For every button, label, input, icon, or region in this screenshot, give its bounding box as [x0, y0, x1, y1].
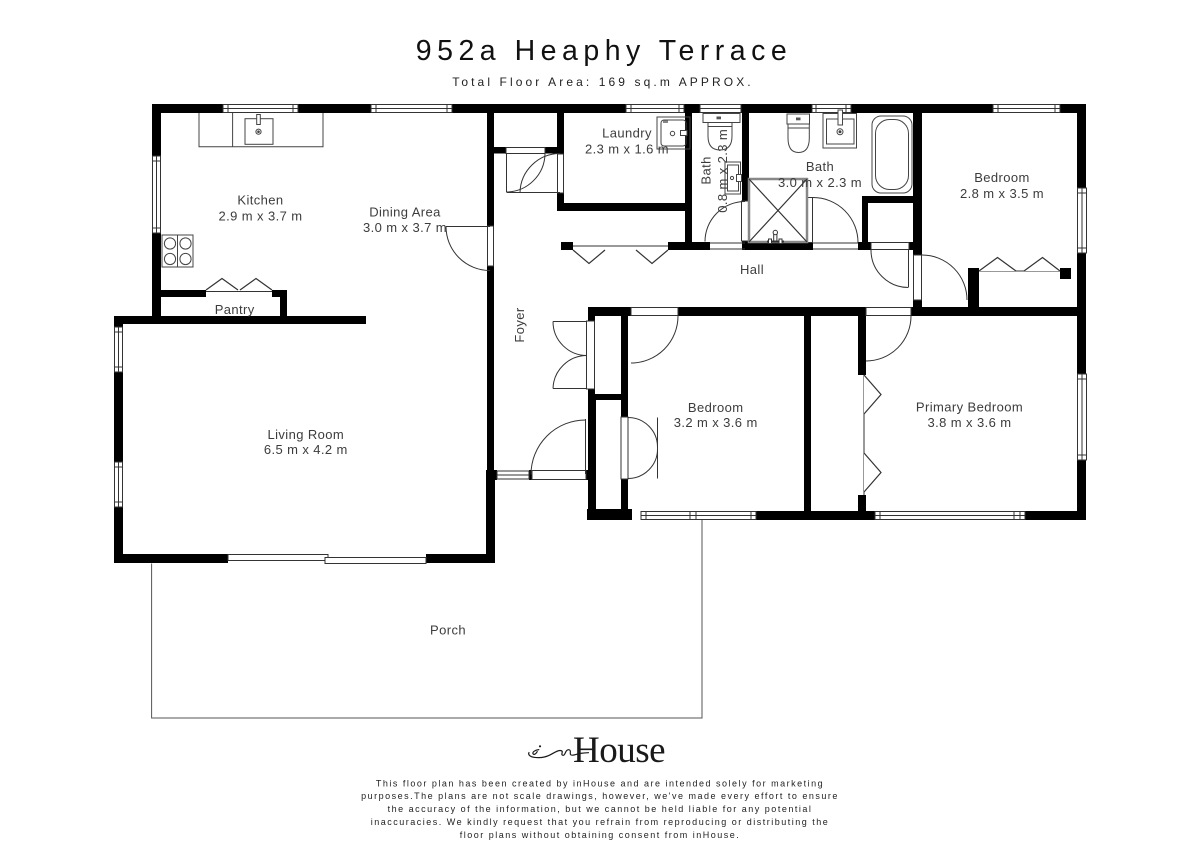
svg-text:the accuracy of the informatio: the accuracy of the information, but we …: [388, 804, 813, 814]
svg-text:2.9 m x 3.7 m: 2.9 m x 3.7 m: [219, 208, 303, 223]
svg-text:Laundry: Laundry: [602, 126, 652, 141]
svg-text:Foyer: Foyer: [512, 307, 527, 343]
svg-text:952a Heaphy Terrace: 952a Heaphy Terrace: [416, 35, 793, 67]
svg-text:3.8 m x 3.6 m: 3.8 m x 3.6 m: [928, 415, 1012, 430]
svg-text:Dining Area: Dining Area: [369, 204, 441, 219]
svg-text:2.3 m x 1.6 m: 2.3 m x 1.6 m: [585, 141, 669, 156]
svg-text:Living Room: Living Room: [267, 427, 344, 442]
svg-text:floor plans without obtaining: floor plans without obtaining consent fr…: [460, 830, 741, 840]
svg-text:purposes.The plans are not sca: purposes.The plans are not scale drawing…: [361, 791, 839, 801]
svg-text:House: House: [573, 730, 665, 771]
svg-text:Total Floor Area: 169 sq.m APP: Total Floor Area: 169 sq.m APPROX.: [452, 75, 754, 89]
svg-text:This floor plan has been creat: This floor plan has been created by inHo…: [376, 778, 824, 788]
svg-text:Porch: Porch: [430, 623, 466, 638]
svg-text:0.8 m x 2.3 m: 0.8 m x 2.3 m: [715, 129, 730, 213]
svg-text:Bedroom: Bedroom: [974, 170, 1030, 185]
svg-text:6.5 m x 4.2 m: 6.5 m x 4.2 m: [264, 442, 348, 457]
svg-text:Pantry: Pantry: [215, 302, 255, 317]
svg-text:Primary Bedroom: Primary Bedroom: [916, 400, 1023, 415]
svg-text:2.8 m x 3.5 m: 2.8 m x 3.5 m: [960, 186, 1044, 201]
svg-text:inaccuracies. We kindly reques: inaccuracies. We kindly request that you…: [371, 817, 830, 827]
svg-text:3.2 m x 3.6 m: 3.2 m x 3.6 m: [674, 415, 758, 430]
svg-text:3.0 m x 2.3 m: 3.0 m x 2.3 m: [778, 175, 862, 190]
svg-text:3.0 m x 3.7 m: 3.0 m x 3.7 m: [363, 220, 447, 235]
svg-text:Hall: Hall: [740, 262, 764, 277]
svg-text:Bath: Bath: [699, 156, 714, 184]
svg-text:Bedroom: Bedroom: [688, 400, 744, 415]
svg-text:Bath: Bath: [806, 159, 834, 174]
svg-text:Kitchen: Kitchen: [237, 193, 283, 208]
